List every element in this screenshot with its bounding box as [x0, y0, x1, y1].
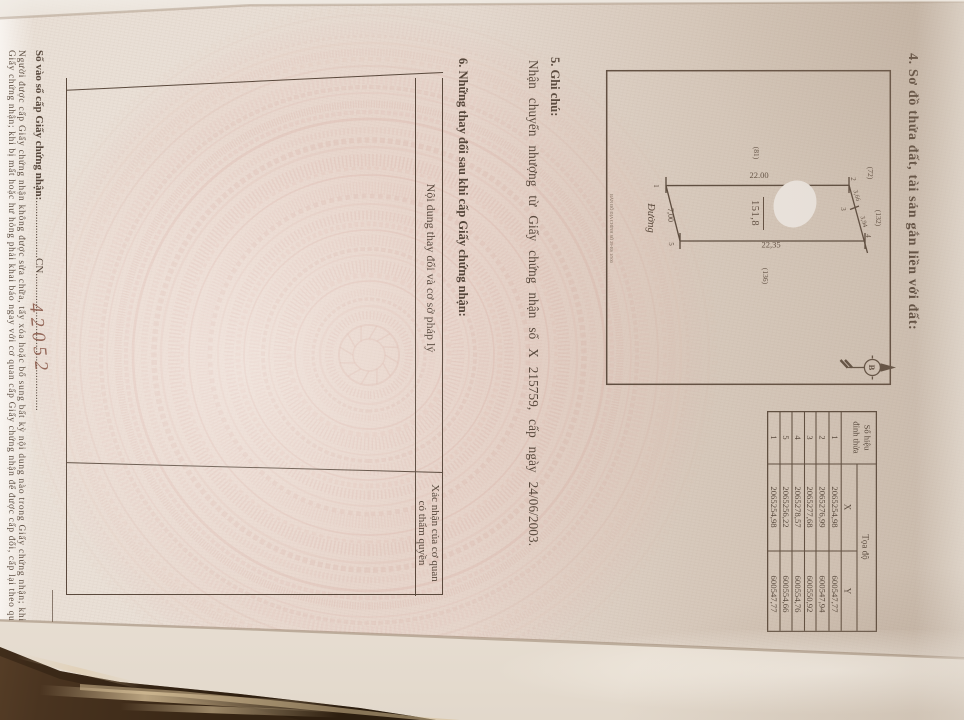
- svg-text:4: 4: [793, 435, 803, 440]
- svg-text:BẢN ĐỒ ĐỊA CHÍNH SỐ 29-B6 1/50: BẢN ĐỒ ĐỊA CHÍNH SỐ 29-B6 1/500: [609, 194, 614, 263]
- svg-text:2065256,22: 2065256,22: [781, 486, 791, 527]
- svg-text:(136): (136): [761, 268, 770, 285]
- svg-text:B: B: [867, 365, 877, 371]
- svg-text:2065254,98: 2065254,98: [769, 486, 779, 528]
- svg-text:600547,77: 600547,77: [769, 576, 779, 614]
- svg-text:2065278,57: 2065278,57: [793, 486, 803, 528]
- svg-text:2065276,99: 2065276,99: [818, 486, 828, 527]
- svg-text:1: 1: [830, 435, 840, 439]
- svg-text:600554,66: 600554,66: [781, 576, 791, 614]
- svg-text:7,00: 7,00: [666, 208, 675, 222]
- svg-text:600547,77: 600547,77: [830, 576, 840, 614]
- svg-text:Số hiệu: Số hiệu: [863, 425, 873, 451]
- svg-text:(81): (81): [752, 147, 761, 160]
- svg-text:600547,94: 600547,94: [818, 576, 828, 614]
- svg-text:2065254,98: 2065254,98: [830, 486, 840, 528]
- svg-text:22.00: 22.00: [749, 170, 768, 180]
- svg-text:Tọa độ: Tọa độ: [861, 534, 871, 560]
- svg-text:2: 2: [818, 435, 828, 439]
- svg-text:X: X: [843, 504, 853, 511]
- svg-text:3: 3: [805, 435, 815, 439]
- svg-text:600554,76: 600554,76: [793, 576, 803, 614]
- svg-text:3: 3: [839, 207, 847, 211]
- svg-text:(132): (132): [874, 210, 883, 227]
- svg-text:5: 5: [667, 242, 675, 246]
- svg-text:1: 1: [652, 184, 660, 188]
- svg-text:Y: Y: [843, 588, 853, 595]
- svg-text:5: 5: [781, 435, 791, 439]
- svg-text:Đường: Đường: [645, 202, 656, 232]
- svg-text:(72): (72): [866, 167, 875, 180]
- svg-text:1: 1: [769, 435, 779, 439]
- svg-text:600550,92: 600550,92: [805, 576, 815, 613]
- svg-text:151,8: 151,8: [749, 200, 760, 226]
- svg-text:2065277,68: 2065277,68: [805, 486, 815, 528]
- svg-text:22,35: 22,35: [761, 240, 780, 250]
- svg-text:4: 4: [864, 234, 872, 238]
- svg-text:đỉnh thửa: đỉnh thửa: [852, 421, 862, 453]
- svg-text:2: 2: [849, 177, 857, 181]
